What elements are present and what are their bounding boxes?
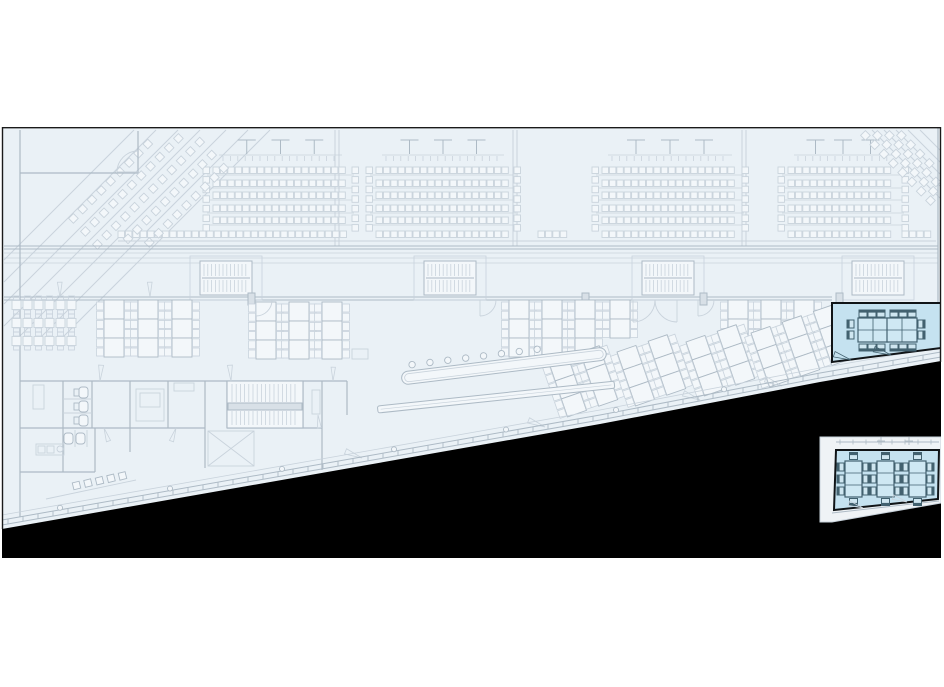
floor-plan-canvas: [0, 0, 944, 687]
page: [0, 0, 944, 687]
main-stair: [227, 381, 303, 428]
